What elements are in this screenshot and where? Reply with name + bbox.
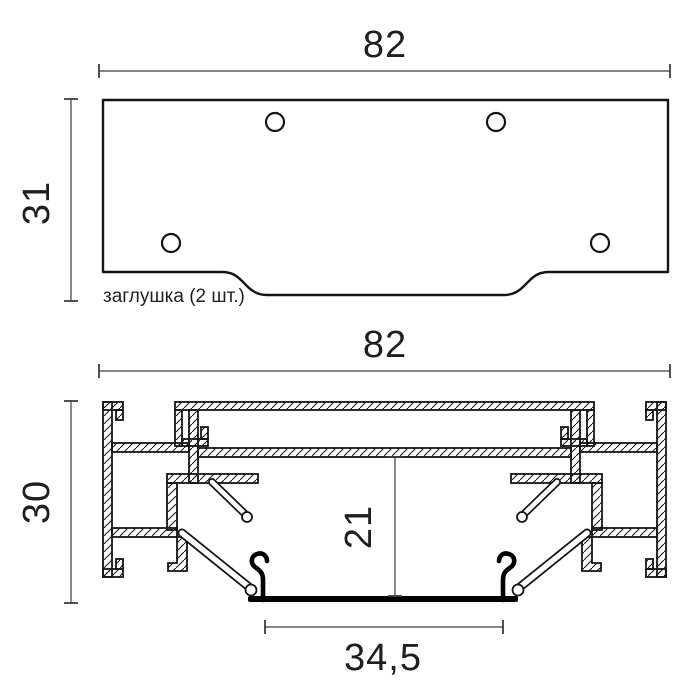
dim-21-profile (388, 457, 402, 596)
dim-34-5-profile (265, 620, 503, 634)
dim-30-profile-text: 30 (16, 480, 58, 524)
dim-82-endcap (99, 64, 670, 78)
profile-fins (182, 482, 587, 596)
dim-21-profile-text: 21 (338, 505, 380, 549)
profile-walls (103, 402, 666, 577)
hole (266, 113, 284, 131)
drawing-canvas: 82 31 заглушка (2 шт.) 82 (0, 0, 700, 700)
cover-base (248, 596, 518, 602)
hole (162, 234, 180, 252)
fin-ball-tip (517, 512, 527, 522)
fin-ball-tip (246, 585, 257, 596)
dim-82-profile-text: 82 (363, 324, 407, 366)
dim-82-endcap-text: 82 (363, 24, 407, 66)
dim-30-profile (64, 401, 78, 603)
fin-ball-tip (513, 585, 524, 596)
profile-cross-section-view: 82 30 (16, 324, 670, 679)
dim-31-endcap-text: 31 (16, 181, 58, 225)
hole (487, 113, 505, 131)
cover-assembly (248, 553, 518, 602)
left-foot-stub (168, 537, 187, 571)
cover-clip-right (499, 553, 514, 600)
hole (591, 234, 609, 252)
fin-ball-tip (242, 512, 252, 522)
dim-31-endcap (64, 99, 78, 301)
left-vertical-wall (189, 410, 198, 483)
dim-82-profile (99, 364, 670, 378)
end-cap-outline (103, 100, 668, 295)
right-foot-stub (582, 537, 601, 571)
right-vertical-wall (571, 410, 580, 483)
end-cap-top-view: 82 31 заглушка (2 шт.) (16, 24, 670, 307)
left-outer-channel (103, 402, 123, 577)
dim-34-5-profile-text: 34,5 (344, 637, 422, 679)
end-cap-label: заглушка (2 шт.) (103, 286, 245, 307)
right-outer-channel (646, 402, 666, 577)
inner-web (198, 448, 571, 457)
technical-drawing: 82 31 заглушка (2 шт.) 82 (0, 0, 700, 700)
top-flange (175, 402, 594, 410)
